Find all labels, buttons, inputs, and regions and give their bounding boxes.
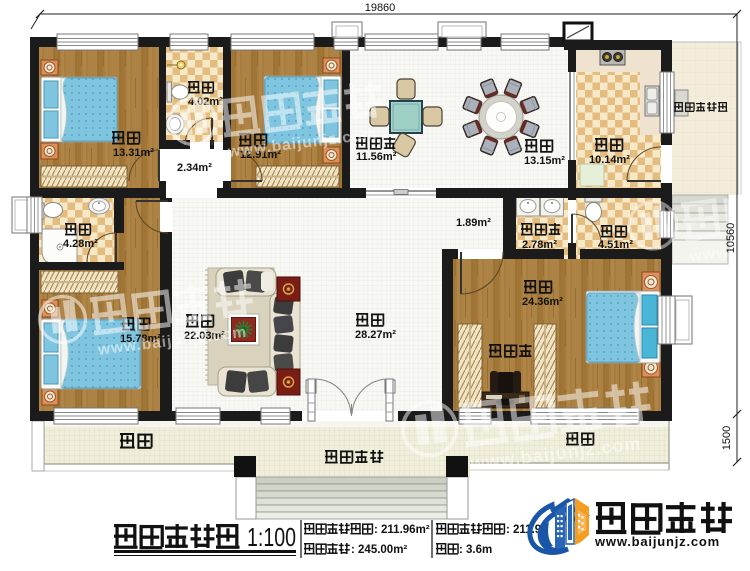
svg-text:1:100: 1:100	[247, 522, 296, 552]
svg-text:13.31m²: 13.31m²	[113, 147, 154, 159]
svg-text:4.51m²: 4.51m²	[598, 239, 633, 251]
svg-text:4.28m²: 4.28m²	[63, 238, 98, 250]
svg-text:28.27m²: 28.27m²	[355, 329, 396, 341]
svg-text:10.14m²: 10.14m²	[589, 154, 630, 166]
svg-text:10560: 10560	[725, 223, 737, 254]
svg-text:: 211.9: : 211.9	[506, 524, 541, 536]
svg-text:: 245.00m²: : 245.00m²	[351, 544, 407, 556]
svg-text:2.34m²: 2.34m²	[177, 162, 212, 174]
svg-text:: 3.6m: : 3.6m	[459, 544, 492, 556]
svg-text:13.15m²: 13.15m²	[524, 155, 565, 167]
svg-text:24.36m²: 24.36m²	[522, 296, 563, 308]
svg-text:2.78m²: 2.78m²	[522, 239, 557, 251]
svg-text:: 211.96m²: : 211.96m²	[374, 524, 430, 536]
svg-text:www.baijunjz.com: www.baijunjz.com	[594, 534, 720, 549]
svg-text:1.89m²: 1.89m²	[456, 217, 491, 229]
svg-text:1500: 1500	[721, 426, 733, 450]
svg-text:19860: 19860	[365, 2, 396, 14]
svg-text:11.56m²: 11.56m²	[356, 151, 397, 163]
